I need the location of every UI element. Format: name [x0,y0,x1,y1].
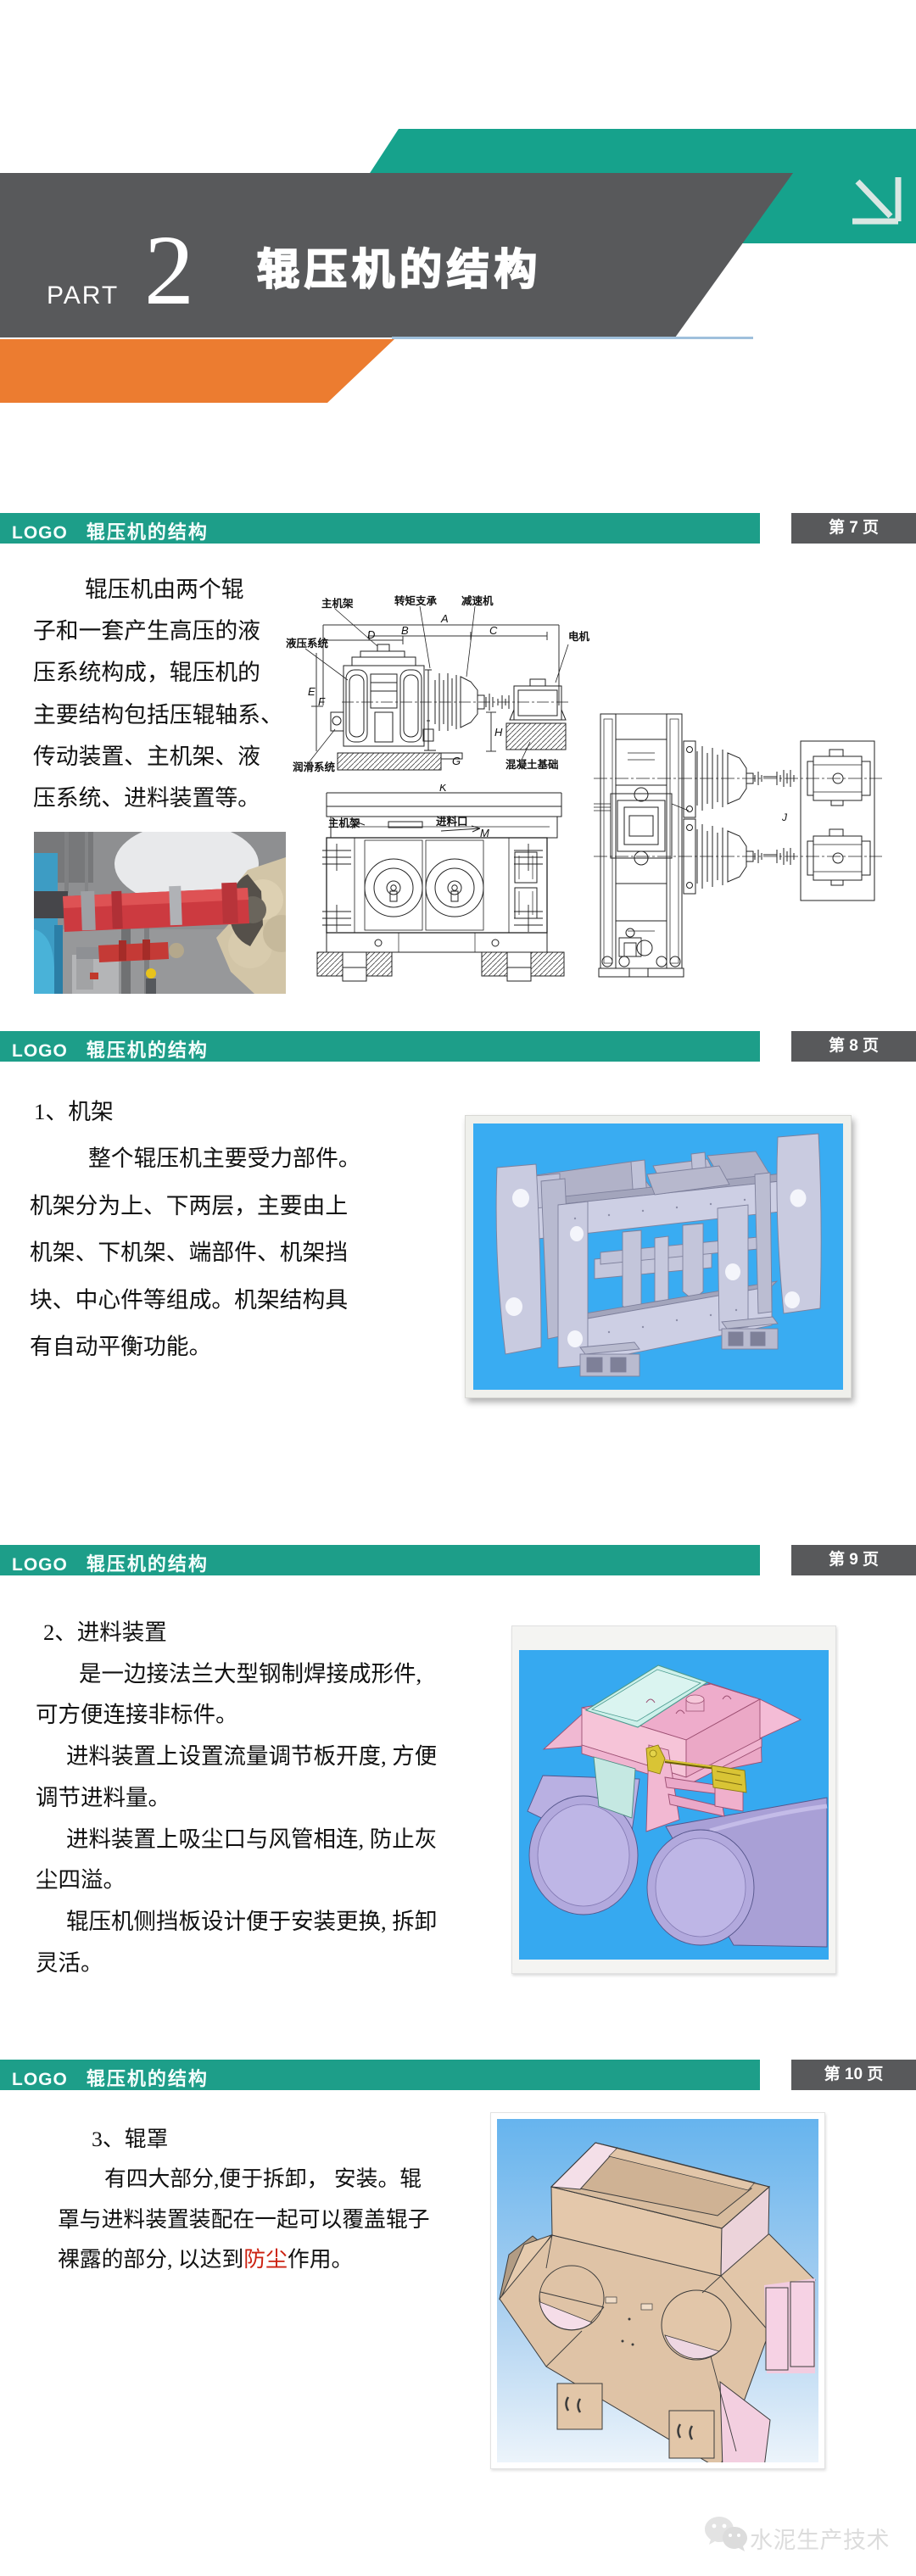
svg-text:主机架: 主机架 [328,817,360,829]
svg-text:M: M [480,827,489,839]
svg-text:F: F [318,695,326,708]
svg-text:C: C [489,624,498,637]
svg-text:主机架: 主机架 [321,597,354,610]
svg-text:K: K [439,784,448,794]
svg-text:液压系统: 液压系统 [286,637,329,650]
svg-text:减速机: 减速机 [461,594,494,607]
svg-text:D: D [367,628,375,641]
svg-text:G: G [452,755,461,767]
svg-text:混凝土基础: 混凝土基础 [505,758,559,771]
svg-text:J: J [781,811,788,823]
svg-text:H: H [494,726,503,739]
svg-text:进料口: 进料口 [436,815,468,828]
svg-text:润滑系统: 润滑系统 [293,761,336,773]
svg-text:A: A [440,612,449,625]
svg-text:电机: 电机 [568,630,590,643]
svg-text:转矩支承: 转矩支承 [394,594,438,607]
svg-text:E: E [308,685,316,698]
svg-text:B: B [401,624,409,637]
